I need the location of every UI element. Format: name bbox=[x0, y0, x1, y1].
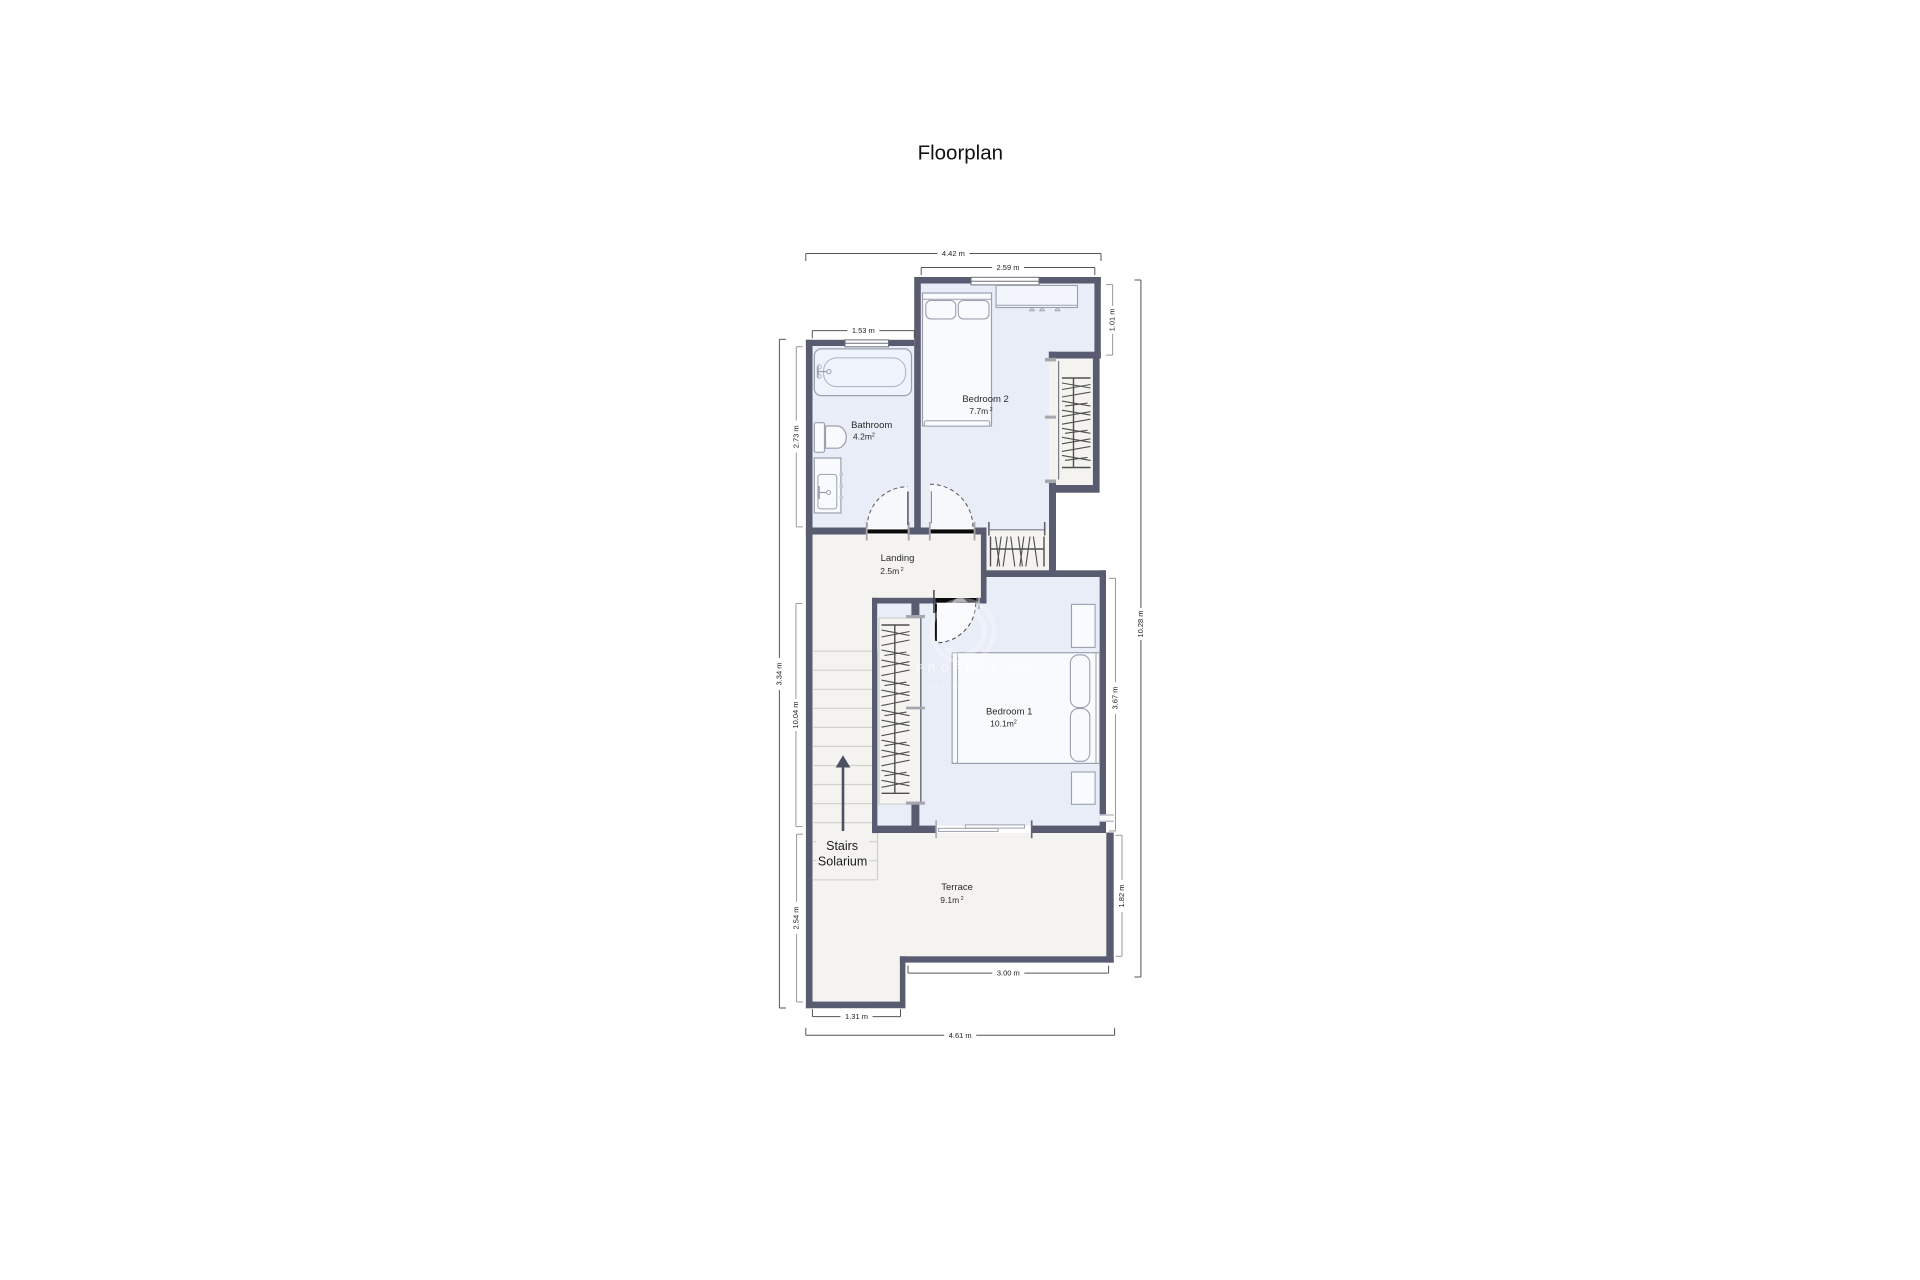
svg-text:1.53 m: 1.53 m bbox=[852, 326, 875, 335]
svg-text:1.31 m: 1.31 m bbox=[845, 1012, 868, 1021]
svg-text:1.01 m: 1.01 m bbox=[1108, 308, 1117, 331]
svg-text:Floorplan: Floorplan bbox=[918, 142, 1003, 165]
svg-text:PROPERTIES: PROPERTIES bbox=[916, 663, 1032, 675]
svg-text:3.67 m: 3.67 m bbox=[1111, 687, 1120, 710]
svg-text:2.59 m: 2.59 m bbox=[997, 263, 1020, 272]
svg-text:3.34 m: 3.34 m bbox=[774, 663, 783, 686]
svg-text:Terrace: Terrace bbox=[941, 882, 973, 893]
svg-text:Solarium: Solarium bbox=[818, 854, 867, 868]
svg-text:Bedroom 2: Bedroom 2 bbox=[962, 394, 1008, 405]
svg-text:Bedroom 1: Bedroom 1 bbox=[986, 707, 1032, 718]
svg-text:4.61 m: 4.61 m bbox=[949, 1031, 972, 1040]
svg-text:4.42 m: 4.42 m bbox=[942, 249, 965, 258]
svg-text:Bathroom: Bathroom bbox=[851, 420, 892, 431]
svg-text:2.73 m: 2.73 m bbox=[791, 425, 800, 448]
svg-text:10.04 m: 10.04 m bbox=[791, 701, 800, 728]
svg-text:10.28 m: 10.28 m bbox=[1136, 610, 1145, 637]
svg-text:4.2m2: 4.2m2 bbox=[853, 431, 875, 441]
svg-text:Landing: Landing bbox=[881, 553, 915, 564]
svg-text:10.1m2: 10.1m2 bbox=[990, 718, 1017, 728]
svg-text:2.54 m: 2.54 m bbox=[792, 907, 801, 930]
svg-text:Stairs: Stairs bbox=[826, 839, 858, 853]
svg-text:REAL ESTATE: REAL ESTATE bbox=[929, 684, 987, 690]
svg-text:3.00 m: 3.00 m bbox=[997, 969, 1020, 978]
svg-text:1.82 m: 1.82 m bbox=[1117, 885, 1126, 908]
